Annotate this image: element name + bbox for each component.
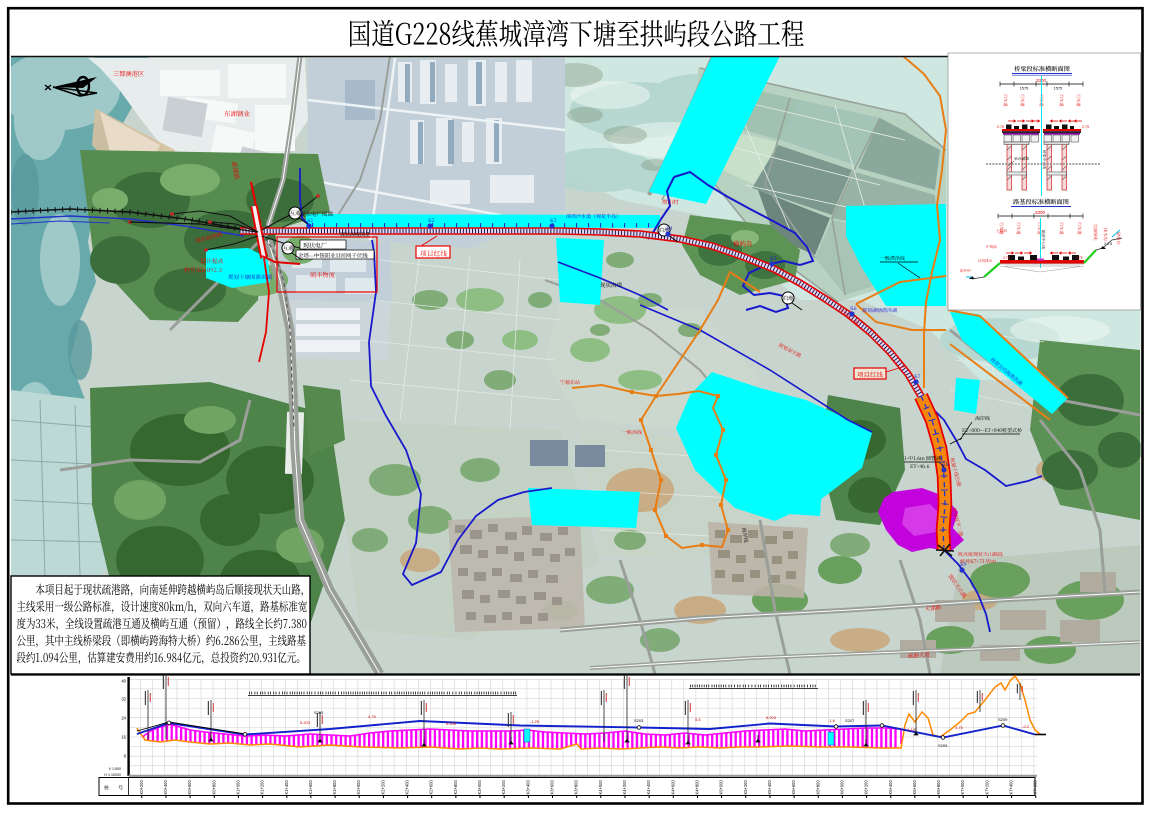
svg-text:K4+200: K4+200	[622, 780, 627, 795]
svg-text:K3+600: K3+600	[550, 780, 555, 795]
svg-text:2:1.5: 2:1.5	[1104, 242, 1112, 246]
svg-text:H 1:10000: H 1:10000	[104, 773, 121, 777]
svg-text:K7+200: K7+200	[984, 780, 989, 795]
svg-text:K4+400: K4+400	[646, 780, 651, 795]
svg-text:5.5: 5.5	[695, 717, 701, 722]
svg-text:S209: S209	[998, 717, 1008, 722]
svg-text:3300: 3300	[1035, 210, 1046, 215]
svg-text:24: 24	[121, 716, 126, 721]
svg-text:K1+800: K1+800	[332, 780, 337, 795]
svg-text:K0+800: K0+800	[211, 780, 216, 795]
svg-text:K5+200: K5+200	[743, 780, 748, 795]
svg-text:S203: S203	[634, 718, 644, 723]
svg-text:K4+800: K4+800	[695, 780, 700, 795]
svg-text:S207: S207	[845, 718, 855, 723]
svg-text:K0+600: K0+600	[187, 780, 192, 795]
svg-text:1575: 1575	[1020, 87, 1028, 91]
svg-text:K6+200: K6+200	[864, 780, 869, 795]
svg-text:K2+200: K2+200	[380, 780, 385, 795]
svg-text:K5+000: K5+000	[719, 780, 724, 795]
svg-text:32: 32	[121, 697, 126, 702]
svg-text:K5+600: K5+600	[791, 780, 796, 795]
svg-text:K1+600: K1+600	[308, 780, 313, 795]
svg-text:-1.6: -1.6	[828, 718, 836, 723]
svg-text:K3+400: K3+400	[525, 780, 530, 795]
svg-text:K0+200: K0+200	[139, 780, 144, 795]
svg-text:K6+000: K6+000	[839, 780, 844, 795]
svg-text:K4+000: K4+000	[598, 780, 603, 795]
svg-text:40: 40	[121, 679, 126, 684]
svg-text:K2+000: K2+000	[356, 780, 361, 795]
svg-text:-1.15: -1.15	[906, 727, 916, 732]
svg-text:K2+800: K2+800	[453, 780, 458, 795]
svg-text:K5+800: K5+800	[815, 780, 820, 795]
svg-text:K5+400: K5+400	[767, 780, 772, 795]
svg-text:K6+400: K6+400	[888, 780, 893, 795]
svg-text:K3+000: K3+000	[477, 780, 482, 795]
svg-text:K6+800: K6+800	[936, 780, 941, 795]
svg-text:K3+800: K3+800	[574, 780, 579, 795]
svg-text:16: 16	[121, 735, 126, 740]
svg-text:K4+600: K4+600	[670, 780, 675, 795]
svg-text:K1+400: K1+400	[284, 780, 289, 795]
svg-text:2.75: 2.75	[1076, 256, 1083, 260]
svg-text:K1+000: K1+000	[235, 780, 240, 795]
svg-text:-1.25: -1.25	[530, 719, 540, 724]
svg-text:5.203: 5.203	[300, 720, 311, 725]
svg-text:8: 8	[124, 754, 127, 759]
svg-text:S203: S203	[314, 710, 324, 715]
svg-text:4.75: 4.75	[368, 714, 377, 719]
svg-text:K3+200: K3+200	[501, 780, 506, 795]
svg-text:2.75: 2.75	[1003, 256, 1010, 260]
svg-text:K2+400: K2+400	[405, 780, 410, 795]
svg-text:K7+400: K7+400	[1009, 780, 1014, 795]
svg-text:K0+400: K0+400	[163, 780, 168, 795]
svg-text:1575: 1575	[1054, 87, 1062, 91]
svg-text:K2+600: K2+600	[429, 780, 434, 795]
svg-text:1.75: 1.75	[955, 725, 964, 730]
svg-text:-2.0: -2.0	[1022, 724, 1030, 729]
svg-text:K1+200: K1+200	[260, 780, 265, 795]
svg-text:K7+000: K7+000	[960, 780, 965, 795]
svg-text:5.203: 5.203	[446, 721, 457, 726]
svg-text:K7+600: K7+600	[1033, 780, 1038, 795]
svg-text:S209: S209	[938, 743, 948, 748]
svg-text:V 1:500: V 1:500	[109, 767, 121, 771]
svg-text:2.75: 2.75	[997, 125, 1004, 129]
svg-text:2.75: 2.75	[1082, 125, 1089, 129]
svg-text:5.203: 5.203	[766, 715, 777, 720]
svg-text:K6+600: K6+600	[912, 780, 917, 795]
